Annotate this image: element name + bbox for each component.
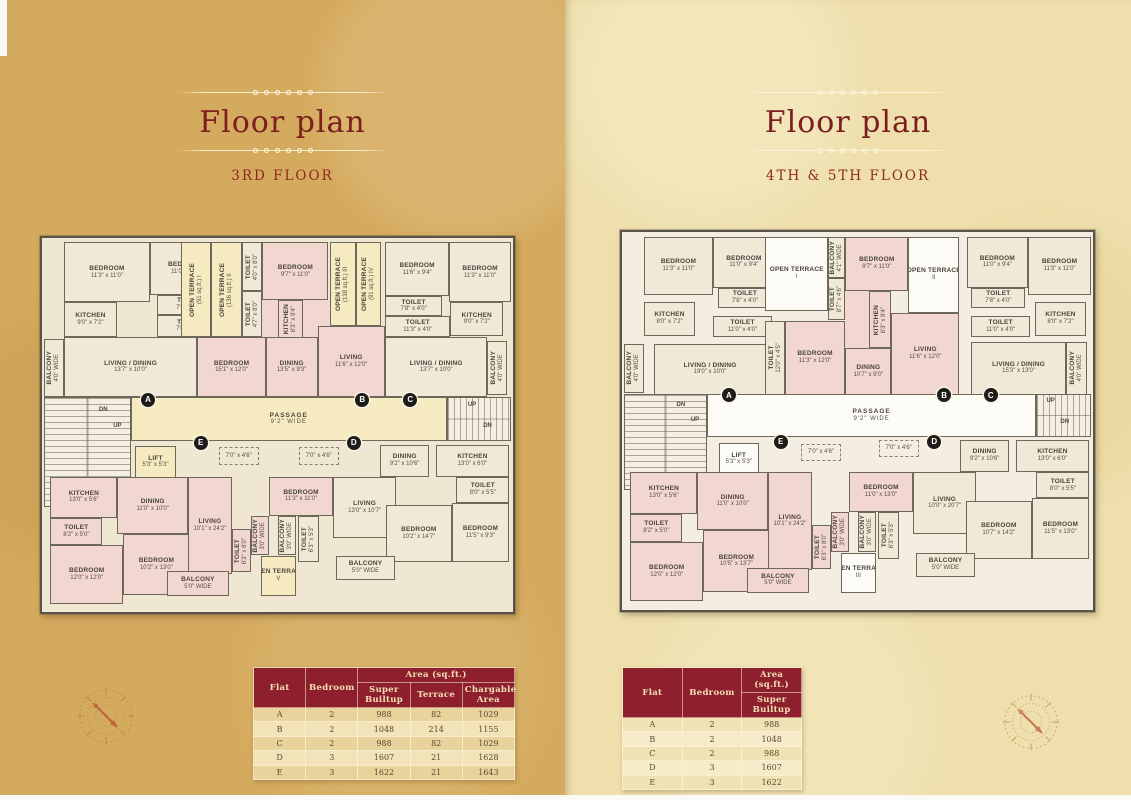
- table-row-flat-c: C2988: [623, 746, 802, 760]
- balcony-room: BALCONY3'0" WIDE: [858, 512, 876, 552]
- toilet-room: TOILET4'0" x 8'0": [242, 242, 263, 291]
- floor-label: 4TH & 5TH FLOOR: [565, 168, 1131, 184]
- stair-direction-label: DN: [99, 407, 108, 413]
- open-terrace-room: OPEN TERRACEV: [261, 556, 297, 596]
- stair-direction-label: UP: [468, 402, 476, 408]
- column-header-super-builtup: Super Builtup: [358, 683, 410, 708]
- open-terrace-room: OPEN TERRACE(91 sq.ft.) IV: [356, 242, 381, 325]
- divider-bottom: [742, 150, 954, 151]
- balcony-room: BALCONY4'0" WIDE: [1066, 342, 1088, 395]
- bedroom-room: BEDROOM11'3" x 11'0": [644, 237, 714, 296]
- toilet-room: TOILET8'2" x 5'0": [50, 518, 102, 546]
- bedroom-room: BEDROOM11'3" x 11'0": [64, 242, 151, 302]
- table-cell: 1155: [462, 722, 514, 736]
- balcony-room: BALCONY5'0" WIDE: [336, 556, 395, 580]
- area-table-3rd: FlatBedroomArea (sq.ft.)Super BuiltupTer…: [253, 667, 515, 780]
- column-header-bedroom: Bedroom: [306, 668, 358, 708]
- bedroom-room: BEDROOM11'0" x 13'0": [849, 472, 913, 512]
- table-cell: 988: [358, 708, 410, 722]
- table-cell: 988: [742, 746, 802, 760]
- bedroom-room: BEDROOM11'5" x 9'3": [452, 503, 509, 562]
- living-room: LIVING10'1" x 24'2": [188, 477, 232, 574]
- column-header-chargable-area: Chargable Area: [462, 683, 514, 708]
- flat-marker-b: B: [937, 388, 951, 402]
- flat-marker-e: E: [194, 436, 208, 450]
- toilet-room: TOILET11'0" x 4'0": [713, 316, 771, 337]
- table-cell: A: [623, 718, 683, 732]
- table-cell: 1622: [358, 765, 410, 779]
- table-cell: 3: [682, 761, 742, 775]
- balcony-room: BALCONY4'0" WIDE: [44, 339, 64, 397]
- dining-room: DINING11'0" x 10'0": [117, 477, 188, 535]
- bedroom-room: BEDROOM11'3" x 11'0": [449, 242, 511, 302]
- bedroom-room: BEDROOM9'7" x 11'0": [262, 242, 328, 300]
- table-row-flat-b: B210482141155: [254, 722, 515, 736]
- table-cell: 1622: [742, 775, 802, 789]
- bedroom-room: BEDROOM11'5" x 13'0": [1032, 498, 1089, 558]
- table-row-flat-a: A2988821029: [254, 708, 515, 722]
- toilet-room: TOILET8'7" x 4'6": [828, 278, 845, 320]
- kitchen-room: KITCHEN6'3" x 9'4": [278, 300, 303, 337]
- table-cell: 82: [410, 736, 462, 750]
- toilet-room: TOILET7'8" x 4'0": [718, 288, 772, 308]
- stair-direction-label: UP: [1046, 398, 1054, 404]
- table-cell: 2: [306, 708, 358, 722]
- dining-room: DINING13'5" x 9'3": [266, 337, 318, 397]
- divider-top: [742, 92, 954, 93]
- table-cell: 3: [682, 775, 742, 789]
- divider-ornament: [815, 89, 881, 96]
- flat-marker-e: E: [774, 435, 788, 449]
- scan-edge-artifact: [0, 795, 1131, 800]
- toilet-room: TOILET4'7" x 8'0": [242, 291, 263, 337]
- toilet-room: TOILET11'3" x 4'0": [385, 316, 450, 337]
- table-cell: D: [254, 751, 306, 765]
- table-cell: 2: [682, 718, 742, 732]
- column-header-super-builtup: Super Builtup: [742, 693, 802, 718]
- stair-direction-label: DN: [1060, 419, 1069, 425]
- living-dining-room: LIVING / DINING13'7" x 10'0": [385, 337, 487, 397]
- page-title: Floor plan: [565, 105, 1131, 140]
- page-3rd-floor: Floor plan 3RD FLOOR PASSAGE9'2" WIDEBAL…: [0, 0, 565, 800]
- table-cell: 988: [742, 718, 802, 732]
- table-cell: 1029: [462, 736, 514, 750]
- balcony-room: BALCONY5'0" WIDE: [916, 553, 975, 577]
- toilet-room: TOILET6'3" x 8'0": [812, 525, 831, 569]
- bedroom-room: BEDROOM12'0" x 12'0": [630, 542, 703, 601]
- brochure-spread: Floor plan 3RD FLOOR PASSAGE9'2" WIDEBAL…: [0, 0, 1131, 800]
- toilet-room: TOILET11'0" x 4'0": [971, 316, 1029, 337]
- flat-marker-c: C: [984, 388, 998, 402]
- divider-ornament: [250, 89, 316, 96]
- living-dining-room: LIVING / DINING15'3" x 13'0": [971, 342, 1065, 395]
- bedroom-room: BEDROOM12'0" x 12'0": [50, 545, 123, 603]
- toilet-room: TOILET8'0" x 5'5": [1036, 472, 1089, 498]
- living-room: LIVING11'6" x 12'0": [318, 326, 385, 397]
- open-terrace-room: OPEN TERRACE(136 sq.ft.) II: [211, 242, 242, 337]
- table-cell: 1029: [462, 708, 514, 722]
- table-cell: 2: [306, 722, 358, 736]
- bedroom-room: BEDROOM10'2" x 14'7": [386, 505, 452, 562]
- kitchen-room: KITCHEN13'0" x 5'6": [630, 472, 697, 514]
- divider-bottom: [177, 150, 389, 151]
- dining-room: DINING9'2" x 10'6": [960, 440, 1009, 472]
- page-4th-5th-floor: Floor plan 4TH & 5TH FLOOR PASSAGE9'2" W…: [565, 0, 1131, 800]
- dimension-note: 7'0" x 4'6": [801, 444, 841, 461]
- table-cell: C: [623, 746, 683, 760]
- dining-room: DINING10'7" x 9'0": [845, 348, 891, 394]
- stair-direction-label: UP: [691, 417, 699, 423]
- table-cell: C: [254, 736, 306, 750]
- dimension-note: 7'0" x 4'6": [219, 447, 259, 465]
- lift-room: LIFT5'3" x 5'3": [135, 446, 176, 479]
- kitchen-room: KITCHEN6'3" x 9'4": [869, 291, 892, 348]
- kitchen-room: KITCHEN8'0" x 7'2": [644, 302, 696, 336]
- flat-marker-d: D: [347, 436, 361, 450]
- flat-marker-b: B: [355, 393, 369, 407]
- balcony-room: BALCONY4'0" WIDE: [624, 344, 644, 393]
- dimension-note: 7'0" x 4'6": [879, 440, 919, 457]
- staircase: [447, 397, 511, 441]
- divider-ornament: [815, 147, 881, 154]
- table-row-flat-b: B21048: [623, 732, 802, 746]
- column-header-flat: Flat: [623, 668, 683, 718]
- kitchen-room: KITCHEN9'0" x 7'2": [450, 302, 503, 336]
- table-row-flat-d: D31607211628: [254, 751, 515, 765]
- table-cell: E: [623, 775, 683, 789]
- balcony-room: BALCONY5'0" WIDE: [167, 571, 229, 596]
- table-cell: 2: [306, 736, 358, 750]
- lift-room: LIFT5'3" x 5'3": [719, 443, 759, 476]
- balcony-room: BALCONY3'0" WIDE: [251, 516, 269, 556]
- living-dining-room: LIVING / DINING13'7" x 10'0": [64, 337, 198, 397]
- open-terrace-room: OPEN TERRACEI: [765, 237, 828, 312]
- table-row-flat-c: C2988821029: [254, 736, 515, 750]
- balcony-room: BALCONY3'0" WIDE: [831, 512, 849, 552]
- table-cell: 1607: [742, 761, 802, 775]
- table-cell: A: [254, 708, 306, 722]
- toilet-room: TOILET6'3" x 5'3": [878, 512, 899, 559]
- table-cell: D: [623, 761, 683, 775]
- column-header-area-sq-ft: Area (sq.ft.): [742, 668, 802, 693]
- column-header-bedroom: Bedroom: [682, 668, 742, 718]
- toilet-room: TOILET7'8" x 4'0": [385, 296, 442, 316]
- area-table-4th-5th: FlatBedroomArea (sq.ft.)Super BuiltupA29…: [622, 667, 802, 790]
- floor-label: 3RD FLOOR: [0, 168, 565, 184]
- open-terrace-room: OPEN TERRACE(138 sq.ft.) III: [330, 242, 355, 325]
- kitchen-room: KITCHEN8'0" x 7'2": [1035, 302, 1087, 336]
- table-cell: 1643: [462, 765, 514, 779]
- bedroom-room: BEDROOM11'6" x 9'4": [385, 242, 449, 295]
- toilet-room: TOILET8'2" x 5'0": [630, 514, 682, 542]
- compass-ornament-icon: [997, 688, 1065, 756]
- scan-edge-artifact: [0, 0, 7, 56]
- open-terrace-room: OPEN TERRACEII: [908, 237, 959, 314]
- table-cell: 1048: [742, 732, 802, 746]
- kitchen-room: KITCHEN13'0" x 6'0": [436, 445, 509, 476]
- table-cell: 1607: [358, 751, 410, 765]
- table-cell: 21: [410, 751, 462, 765]
- table-cell: 2: [682, 732, 742, 746]
- living-room: LIVING10'1" x 24'2": [768, 472, 812, 570]
- toilet-room: TOILET6'3" x 8'0": [232, 529, 251, 572]
- bedroom-room: BEDROOM11'0" x 9'4": [967, 237, 1028, 288]
- kitchen-room: KITCHEN13'0" x 5'6": [50, 477, 117, 518]
- divider-top: [177, 92, 389, 93]
- page-header: Floor plan 3RD FLOOR: [0, 92, 565, 184]
- table-cell: E: [254, 765, 306, 779]
- flat-marker-a: A: [722, 388, 736, 402]
- dining-room: DINING11'0" x 10'0": [697, 472, 768, 530]
- flat-marker-d: D: [927, 435, 941, 449]
- bedroom-room: BEDROOM11'3" x 11'0": [1028, 237, 1091, 296]
- table-cell: 988: [358, 736, 410, 750]
- page-title: Floor plan: [0, 105, 565, 140]
- page-header: Floor plan 4TH & 5TH FLOOR: [565, 92, 1131, 184]
- toilet-room: TOILET6'3" x 5'3": [298, 516, 319, 562]
- passage-room: PASSAGE9'2" WIDE: [131, 397, 448, 441]
- compass-ornament-icon: [72, 682, 140, 750]
- column-header-terrace: Terrace: [410, 683, 462, 708]
- column-header-area-sq-ft: Area (sq.ft.): [358, 668, 515, 683]
- table-row-flat-e: E31622: [623, 775, 802, 789]
- floor-plan-3rd: PASSAGE9'2" WIDEBALCONY4'0" WIDEBEDROOM1…: [40, 236, 515, 614]
- stair-direction-label: UP: [113, 423, 121, 429]
- balcony-room: BALCONY3'0" WIDE: [278, 516, 296, 556]
- flat-marker-a: A: [141, 393, 155, 407]
- balcony-room: BALCONY5'0" WIDE: [747, 568, 809, 593]
- table-cell: 82: [410, 708, 462, 722]
- table-cell: 214: [410, 722, 462, 736]
- bedroom-room: BEDROOM11'3" x 11'0": [269, 477, 333, 516]
- toilet-room: TOILET12'0" x 4'5": [765, 321, 785, 395]
- toilet-room: TOILET8'0" x 5'5": [456, 477, 509, 503]
- balcony-room: BALCONY4'1" WIDE: [828, 237, 845, 279]
- bedroom-room: BEDROOM15'1" x 12'0": [197, 337, 265, 397]
- staircase: [1036, 394, 1091, 437]
- table-row-flat-a: A2988: [623, 718, 802, 732]
- bedroom-room: BEDROOM9'7" x 11'0": [845, 237, 908, 292]
- kitchen-room: KITCHEN9'0" x 7'2": [64, 302, 118, 337]
- open-terrace-room: OPEN TERRACEIII: [841, 553, 877, 593]
- stair-direction-label: DN: [677, 402, 686, 408]
- table-cell: 1628: [462, 751, 514, 765]
- kitchen-room: KITCHEN13'0" x 6'0": [1016, 440, 1089, 472]
- open-terrace-room: OPEN TERRACE(91 sq.ft.) I: [181, 242, 210, 337]
- living-room: LIVING11'6" x 12'0": [891, 313, 959, 394]
- dimension-note: 7'0" x 4'6": [299, 447, 339, 465]
- stair-direction-label: DN: [483, 423, 492, 429]
- table-cell: B: [623, 732, 683, 746]
- balcony-room: BALCONY4'0" WIDE: [487, 341, 507, 395]
- table-cell: B: [254, 722, 306, 736]
- table-row-flat-d: D31607: [623, 761, 802, 775]
- table-cell: 1048: [358, 722, 410, 736]
- flat-marker-c: C: [403, 393, 417, 407]
- table-cell: 21: [410, 765, 462, 779]
- living-dining-room: LIVING / DINING19'0" x 10'0": [654, 344, 766, 395]
- column-header-flat: Flat: [254, 668, 306, 708]
- table-row-flat-e: E31622211643: [254, 765, 515, 779]
- divider-ornament: [250, 147, 316, 154]
- toilet-room: TOILET7'8" x 4'0": [971, 288, 1025, 308]
- table-cell: 3: [306, 765, 358, 779]
- table-cell: 3: [306, 751, 358, 765]
- bedroom-room: BEDROOM11'3" x 12'0": [785, 321, 845, 395]
- dining-room: DINING9'2" x 10'6": [380, 445, 429, 476]
- table-cell: 2: [682, 746, 742, 760]
- floor-plan-4th-5th: PASSAGE9'2" WIDEBALCONY4'0" WIDEBEDROOM1…: [620, 230, 1095, 612]
- bedroom-room: BEDROOM10'7" x 14'2": [966, 501, 1032, 559]
